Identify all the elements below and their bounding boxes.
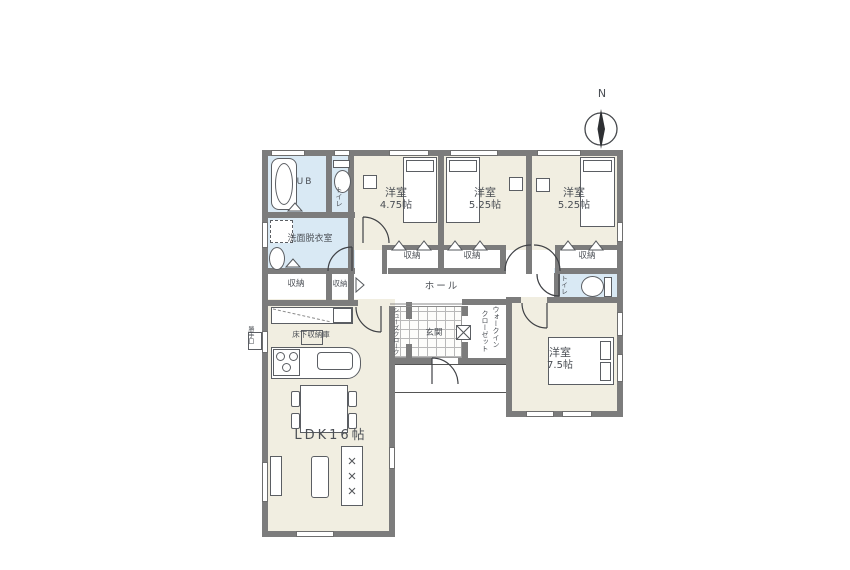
closet-label-bedroom2: 収納 (450, 252, 494, 262)
wall (326, 150, 332, 218)
walk-in-closet-label-line1: ウォークイン (492, 306, 500, 348)
compass-north-label: N (596, 88, 608, 101)
wall (262, 212, 355, 218)
tv-board (270, 456, 282, 496)
wall (526, 150, 532, 274)
chair (348, 413, 357, 429)
room-size: 7.5帖 (528, 360, 592, 372)
kitchen-sink (317, 352, 353, 370)
room-size: 4.75帖 (363, 200, 429, 212)
wall (462, 342, 468, 358)
wall (444, 245, 506, 250)
room-name: 洋室 (528, 347, 592, 360)
closet-label-bedroom3: 収納 (561, 252, 613, 262)
low-table (311, 456, 329, 498)
room-size: 5.25帖 (452, 200, 518, 212)
wall (406, 302, 412, 319)
ldk-label: LDK16帖 (288, 429, 374, 444)
window (262, 222, 268, 248)
window (262, 462, 268, 502)
window (537, 150, 581, 156)
toilet-upper-label: トイレ (335, 186, 343, 207)
window (334, 150, 350, 156)
wall (382, 245, 387, 274)
toilet-lower-label: トイレ (559, 275, 566, 295)
window (271, 150, 305, 156)
floor-plan: N UB トイレ 洗面脱衣室 洋室 4.75帖 洋室 5.25帖 洋室 5.25… (0, 0, 850, 570)
wall (462, 299, 512, 305)
chair (291, 391, 300, 407)
ub-label: UB (288, 177, 322, 187)
window (617, 354, 623, 382)
wall (547, 297, 623, 303)
pillar-box (456, 325, 471, 340)
window (617, 222, 623, 242)
chair (348, 391, 357, 407)
wall (559, 268, 623, 274)
hall-label: ホール (419, 282, 465, 293)
porch (390, 364, 512, 393)
toilet-bowl (581, 276, 604, 297)
wall (438, 150, 444, 274)
burner (282, 363, 291, 372)
window (389, 150, 429, 156)
wall (555, 245, 560, 274)
back-door-label: 勝手口 (246, 326, 253, 344)
burner (289, 352, 298, 361)
closet-label-bedroom1: 収納 (390, 252, 434, 262)
sofa (341, 446, 363, 506)
underfloor-storage-label: 床下収納庫 (282, 331, 340, 340)
bedroom1-label: 洋室 4.75帖 (363, 187, 429, 211)
window (562, 411, 592, 417)
chair (291, 413, 300, 429)
room-name: 洋室 (452, 187, 518, 200)
wall (458, 358, 512, 364)
wall (389, 358, 432, 364)
window (450, 150, 498, 156)
window (296, 531, 334, 537)
wall (506, 297, 512, 417)
shoes-closet-label: シューズクローク (391, 307, 398, 355)
entrance-label: 玄関 (423, 329, 445, 339)
window (526, 411, 554, 417)
wall (500, 245, 506, 274)
wall (555, 245, 617, 250)
wall (382, 245, 444, 250)
cupboard-cabinet (333, 308, 352, 323)
closet-label-corridor-left: 収納 (266, 280, 326, 290)
toilet-tank (333, 160, 350, 168)
room-name: 洋室 (541, 187, 607, 200)
bedroom3-label: 洋室 5.25帖 (541, 187, 607, 211)
compass-icon (580, 102, 624, 154)
dining-table (300, 385, 348, 433)
pillow (600, 341, 611, 360)
pillow (583, 160, 612, 172)
pillow (600, 362, 611, 381)
wall (388, 268, 500, 274)
walk-in-closet-label-line2: クローゼット (481, 310, 489, 352)
burner (276, 352, 285, 361)
window (617, 312, 623, 336)
room-name: 洋室 (363, 187, 429, 200)
bedroom2-label: 洋室 5.25帖 (452, 187, 518, 211)
back-door-opening (262, 331, 268, 353)
toilet-tank (604, 277, 612, 297)
room-size: 5.25帖 (541, 200, 607, 212)
washbasin (269, 247, 285, 270)
pillow (449, 160, 477, 172)
pillow (406, 160, 434, 172)
wall (406, 344, 412, 358)
wall (262, 300, 358, 306)
wall (462, 306, 468, 316)
bedroom4-label: 洋室 7.5帖 (528, 347, 592, 371)
window (389, 447, 395, 469)
closet-label-corridor-right: 収納 (328, 280, 352, 289)
washroom-label: 洗面脱衣室 (274, 234, 346, 244)
